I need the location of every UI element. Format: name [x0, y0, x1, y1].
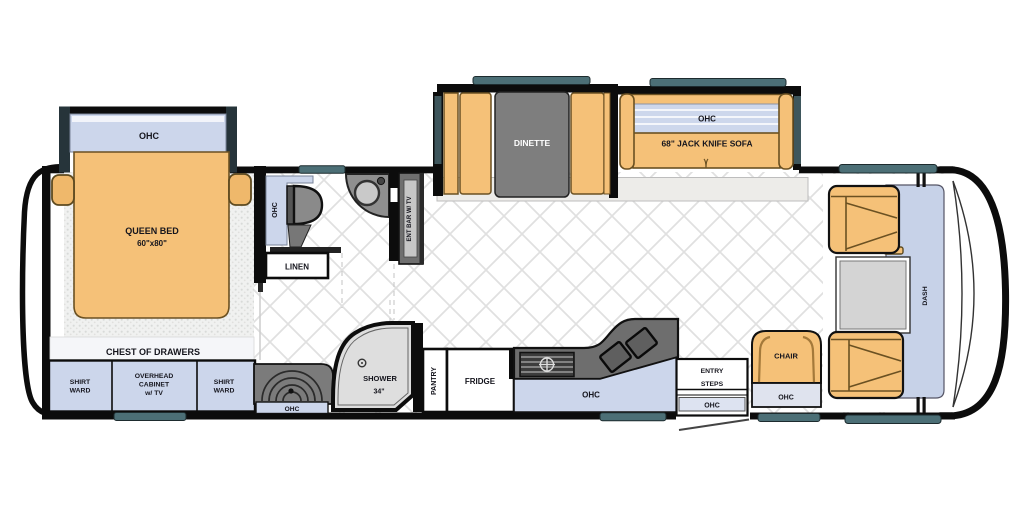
- svg-text:QUEEN BED: QUEEN BED: [125, 226, 179, 236]
- svg-text:OHC: OHC: [272, 202, 279, 218]
- svg-text:OHC: OHC: [704, 403, 720, 410]
- svg-text:w/ TV: w/ TV: [144, 390, 163, 397]
- svg-text:PANTRY: PANTRY: [431, 367, 438, 395]
- svg-text:WARD: WARD: [214, 388, 235, 395]
- svg-text:60"x80": 60"x80": [137, 239, 167, 248]
- svg-text:68" JACK KNIFE SOFA: 68" JACK KNIFE SOFA: [662, 139, 753, 149]
- svg-text:SHIRT: SHIRT: [214, 379, 235, 386]
- svg-text:OVERHEAD: OVERHEAD: [135, 373, 174, 380]
- svg-text:SHOWER: SHOWER: [363, 374, 397, 383]
- svg-text:OHC: OHC: [698, 115, 716, 124]
- svg-text:ENTRY: ENTRY: [701, 368, 724, 375]
- svg-text:34": 34": [373, 389, 384, 396]
- svg-text:OHC: OHC: [778, 395, 794, 402]
- svg-text:OHC: OHC: [139, 131, 160, 141]
- svg-text:STEPS: STEPS: [701, 381, 724, 388]
- svg-text:LINEN: LINEN: [285, 263, 309, 272]
- svg-text:ENT BAR W/ TV: ENT BAR W/ TV: [407, 197, 413, 242]
- svg-text:DINETTE: DINETTE: [514, 138, 551, 148]
- svg-text:FRIDGE: FRIDGE: [465, 377, 496, 386]
- svg-text:CHAIR: CHAIR: [774, 352, 798, 361]
- svg-text:OHC: OHC: [582, 391, 600, 400]
- svg-text:DASH: DASH: [922, 286, 929, 305]
- svg-text:OHC: OHC: [285, 406, 300, 413]
- svg-text:WARD: WARD: [70, 388, 91, 395]
- svg-text:SHIRT: SHIRT: [70, 379, 91, 386]
- svg-text:CABINET: CABINET: [139, 382, 170, 389]
- svg-text:CHEST OF DRAWERS: CHEST OF DRAWERS: [106, 347, 200, 357]
